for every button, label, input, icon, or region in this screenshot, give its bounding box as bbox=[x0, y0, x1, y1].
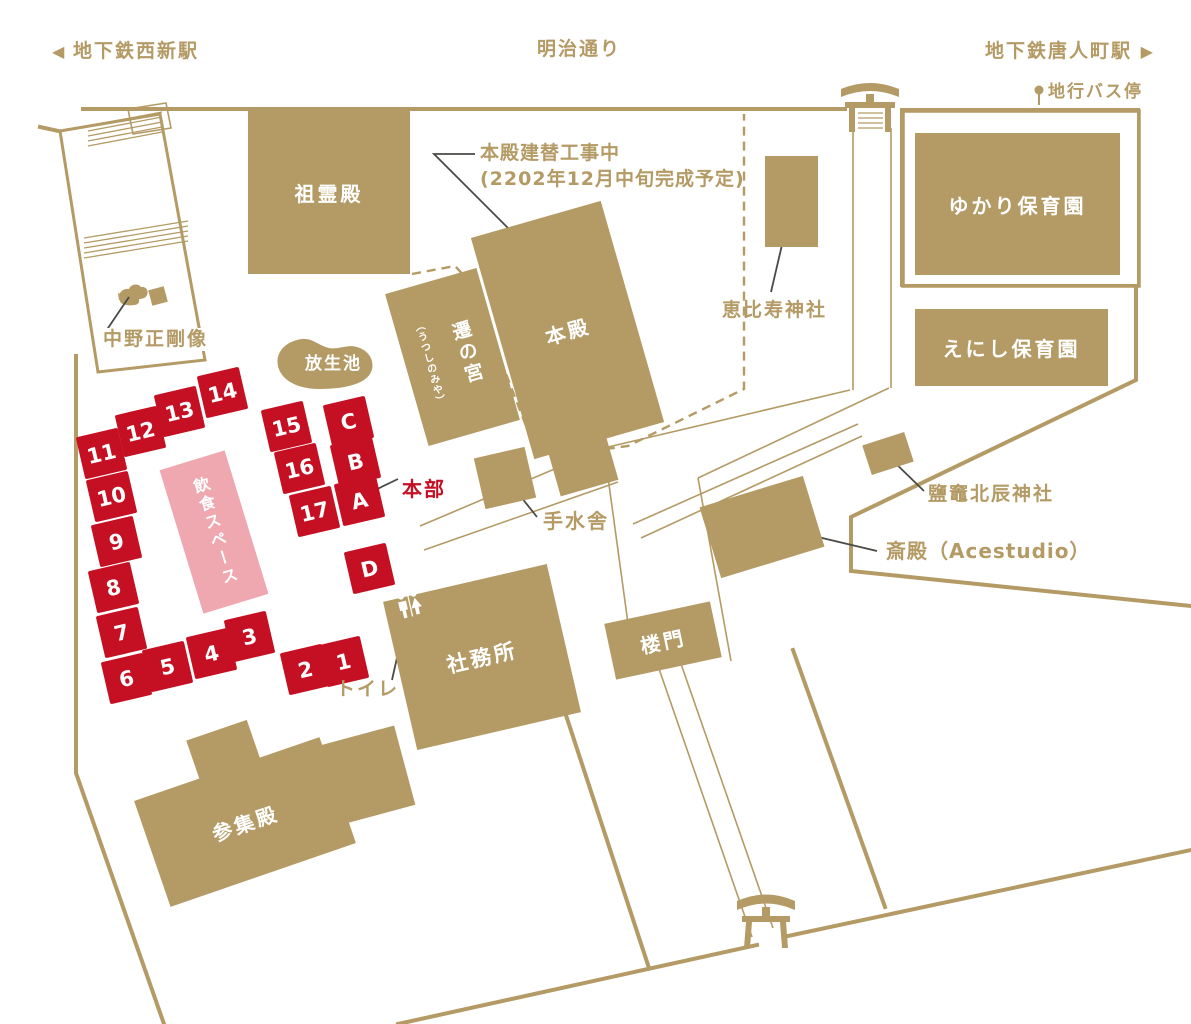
label-temizusha-text: 手水舎 bbox=[543, 509, 609, 533]
label-nakano-text: 中野正剛像 bbox=[103, 328, 208, 350]
label-toilet: トイレ bbox=[336, 678, 399, 701]
building-honden-label: 本殿 bbox=[541, 310, 593, 351]
building-shamusho-label: 社務所 bbox=[444, 634, 521, 679]
label-pond: 放生池 bbox=[305, 354, 362, 374]
label-bus-stop-text: 地行バス停 bbox=[1048, 82, 1143, 102]
boundary-south-west bbox=[398, 945, 757, 1024]
label-street: 明治通り bbox=[537, 38, 621, 61]
stall-5-label: 5 bbox=[158, 653, 178, 680]
building-yukari-label: ゆかり保育園 bbox=[949, 190, 1087, 219]
label-saiden-text: 斎殿（Acestudio） bbox=[886, 539, 1091, 563]
stall-14-label: 14 bbox=[206, 378, 240, 408]
label-ebisu-text: 恵比寿神社 bbox=[722, 299, 827, 321]
stall-A-label: A bbox=[349, 487, 370, 514]
label-construction-1: 本殿建替工事中 bbox=[480, 142, 620, 165]
building-romon-label: 楼門 bbox=[637, 622, 688, 660]
label-construction-1-text: 本殿建替工事中 bbox=[480, 142, 620, 164]
building-ebisu-shrine bbox=[765, 156, 818, 247]
stall-8-label: 8 bbox=[104, 574, 124, 601]
stall-D-label: D bbox=[358, 555, 380, 582]
arrow-left-icon: ◀ bbox=[52, 42, 64, 61]
stall-17-label: 17 bbox=[298, 497, 332, 527]
label-bus-stop: 地行バス停 bbox=[1048, 82, 1143, 102]
stall-7-label: 7 bbox=[112, 619, 132, 646]
stall-3-label: 3 bbox=[240, 623, 260, 650]
stall-15-label: 15 bbox=[270, 412, 304, 442]
label-east-station-text: 地下鉄唐人町駅 bbox=[985, 40, 1132, 62]
stall-B-label: B bbox=[345, 448, 366, 475]
label-temizusha: 手水舎 bbox=[543, 509, 609, 533]
label-saiden: 斎殿（Acestudio） bbox=[886, 539, 1091, 563]
stall-6-label: 6 bbox=[117, 665, 137, 692]
boundary-lower-left bbox=[560, 697, 648, 965]
stall-1-label: 1 bbox=[334, 648, 354, 675]
stall-11-label: 11 bbox=[85, 439, 119, 469]
stall-12-label: 12 bbox=[124, 417, 158, 447]
label-honbu-text: 本部 bbox=[402, 477, 446, 501]
dining-space-label: 飲食スペース bbox=[186, 474, 242, 590]
stall-16-label: 16 bbox=[283, 454, 317, 484]
stall-9-label: 9 bbox=[107, 528, 127, 555]
label-nakano-statue: 中野正剛像 bbox=[101, 328, 210, 351]
path-south-left bbox=[657, 663, 752, 937]
label-construction-2: (2202年12月中旬完成予定) bbox=[480, 168, 745, 191]
stall-C-label: C bbox=[338, 408, 358, 435]
label-pond-text: 放生池 bbox=[305, 354, 362, 374]
label-toilet-text: トイレ bbox=[336, 678, 399, 700]
building-utsushinomiya-label: 遷の宮 bbox=[445, 317, 489, 388]
label-shiogama-text: 鹽竈北辰神社 bbox=[928, 483, 1054, 505]
label-west-station-text: 地下鉄西新駅 bbox=[73, 40, 199, 62]
path-diagonal-lower bbox=[698, 388, 889, 478]
label-honbu: 本部 bbox=[402, 477, 446, 501]
label-west-station: ◀ 地下鉄西新駅 bbox=[52, 40, 199, 63]
arrow-right-icon: ▶ bbox=[1141, 42, 1153, 61]
stall-10-label: 10 bbox=[95, 482, 129, 512]
stall-13-label: 13 bbox=[163, 397, 197, 427]
label-east-station: 地下鉄唐人町駅 ▶ bbox=[985, 40, 1153, 63]
label-shiogama: 鹽竈北辰神社 bbox=[928, 483, 1054, 506]
stall-2-label: 2 bbox=[296, 656, 316, 683]
building-enishi-nursery: えにし保育園 bbox=[915, 309, 1108, 386]
boundary-lower-right bbox=[793, 650, 885, 907]
building-sanshuden-label: 参集殿 bbox=[208, 797, 283, 847]
label-ebisu: 恵比寿神社 bbox=[722, 299, 827, 322]
stall-4-label: 4 bbox=[202, 640, 222, 667]
building-utsushinomiya-reading: （うつしのみや） bbox=[409, 319, 448, 408]
building-soreiden: 祖霊殿 bbox=[248, 110, 410, 274]
label-construction-2-text: (2202年12月中旬完成予定) bbox=[480, 168, 745, 190]
boundary-south-east bbox=[788, 850, 1191, 936]
torii-icon-south bbox=[737, 895, 795, 949]
building-soreiden-label: 祖霊殿 bbox=[295, 178, 364, 207]
label-street-text: 明治通り bbox=[537, 38, 621, 60]
path-south-right bbox=[680, 661, 773, 928]
bus-stop-icon bbox=[1035, 86, 1044, 106]
shrine-festival-map: 祖霊殿 本殿 遷の宮 （うつしのみや） ゆかり保育園 えにし保育園 社務所 参集… bbox=[0, 0, 1191, 1024]
torii-icon-north bbox=[841, 83, 899, 132]
building-yukari-nursery: ゆかり保育園 bbox=[915, 133, 1120, 275]
building-enishi-label: えにし保育園 bbox=[943, 333, 1081, 362]
